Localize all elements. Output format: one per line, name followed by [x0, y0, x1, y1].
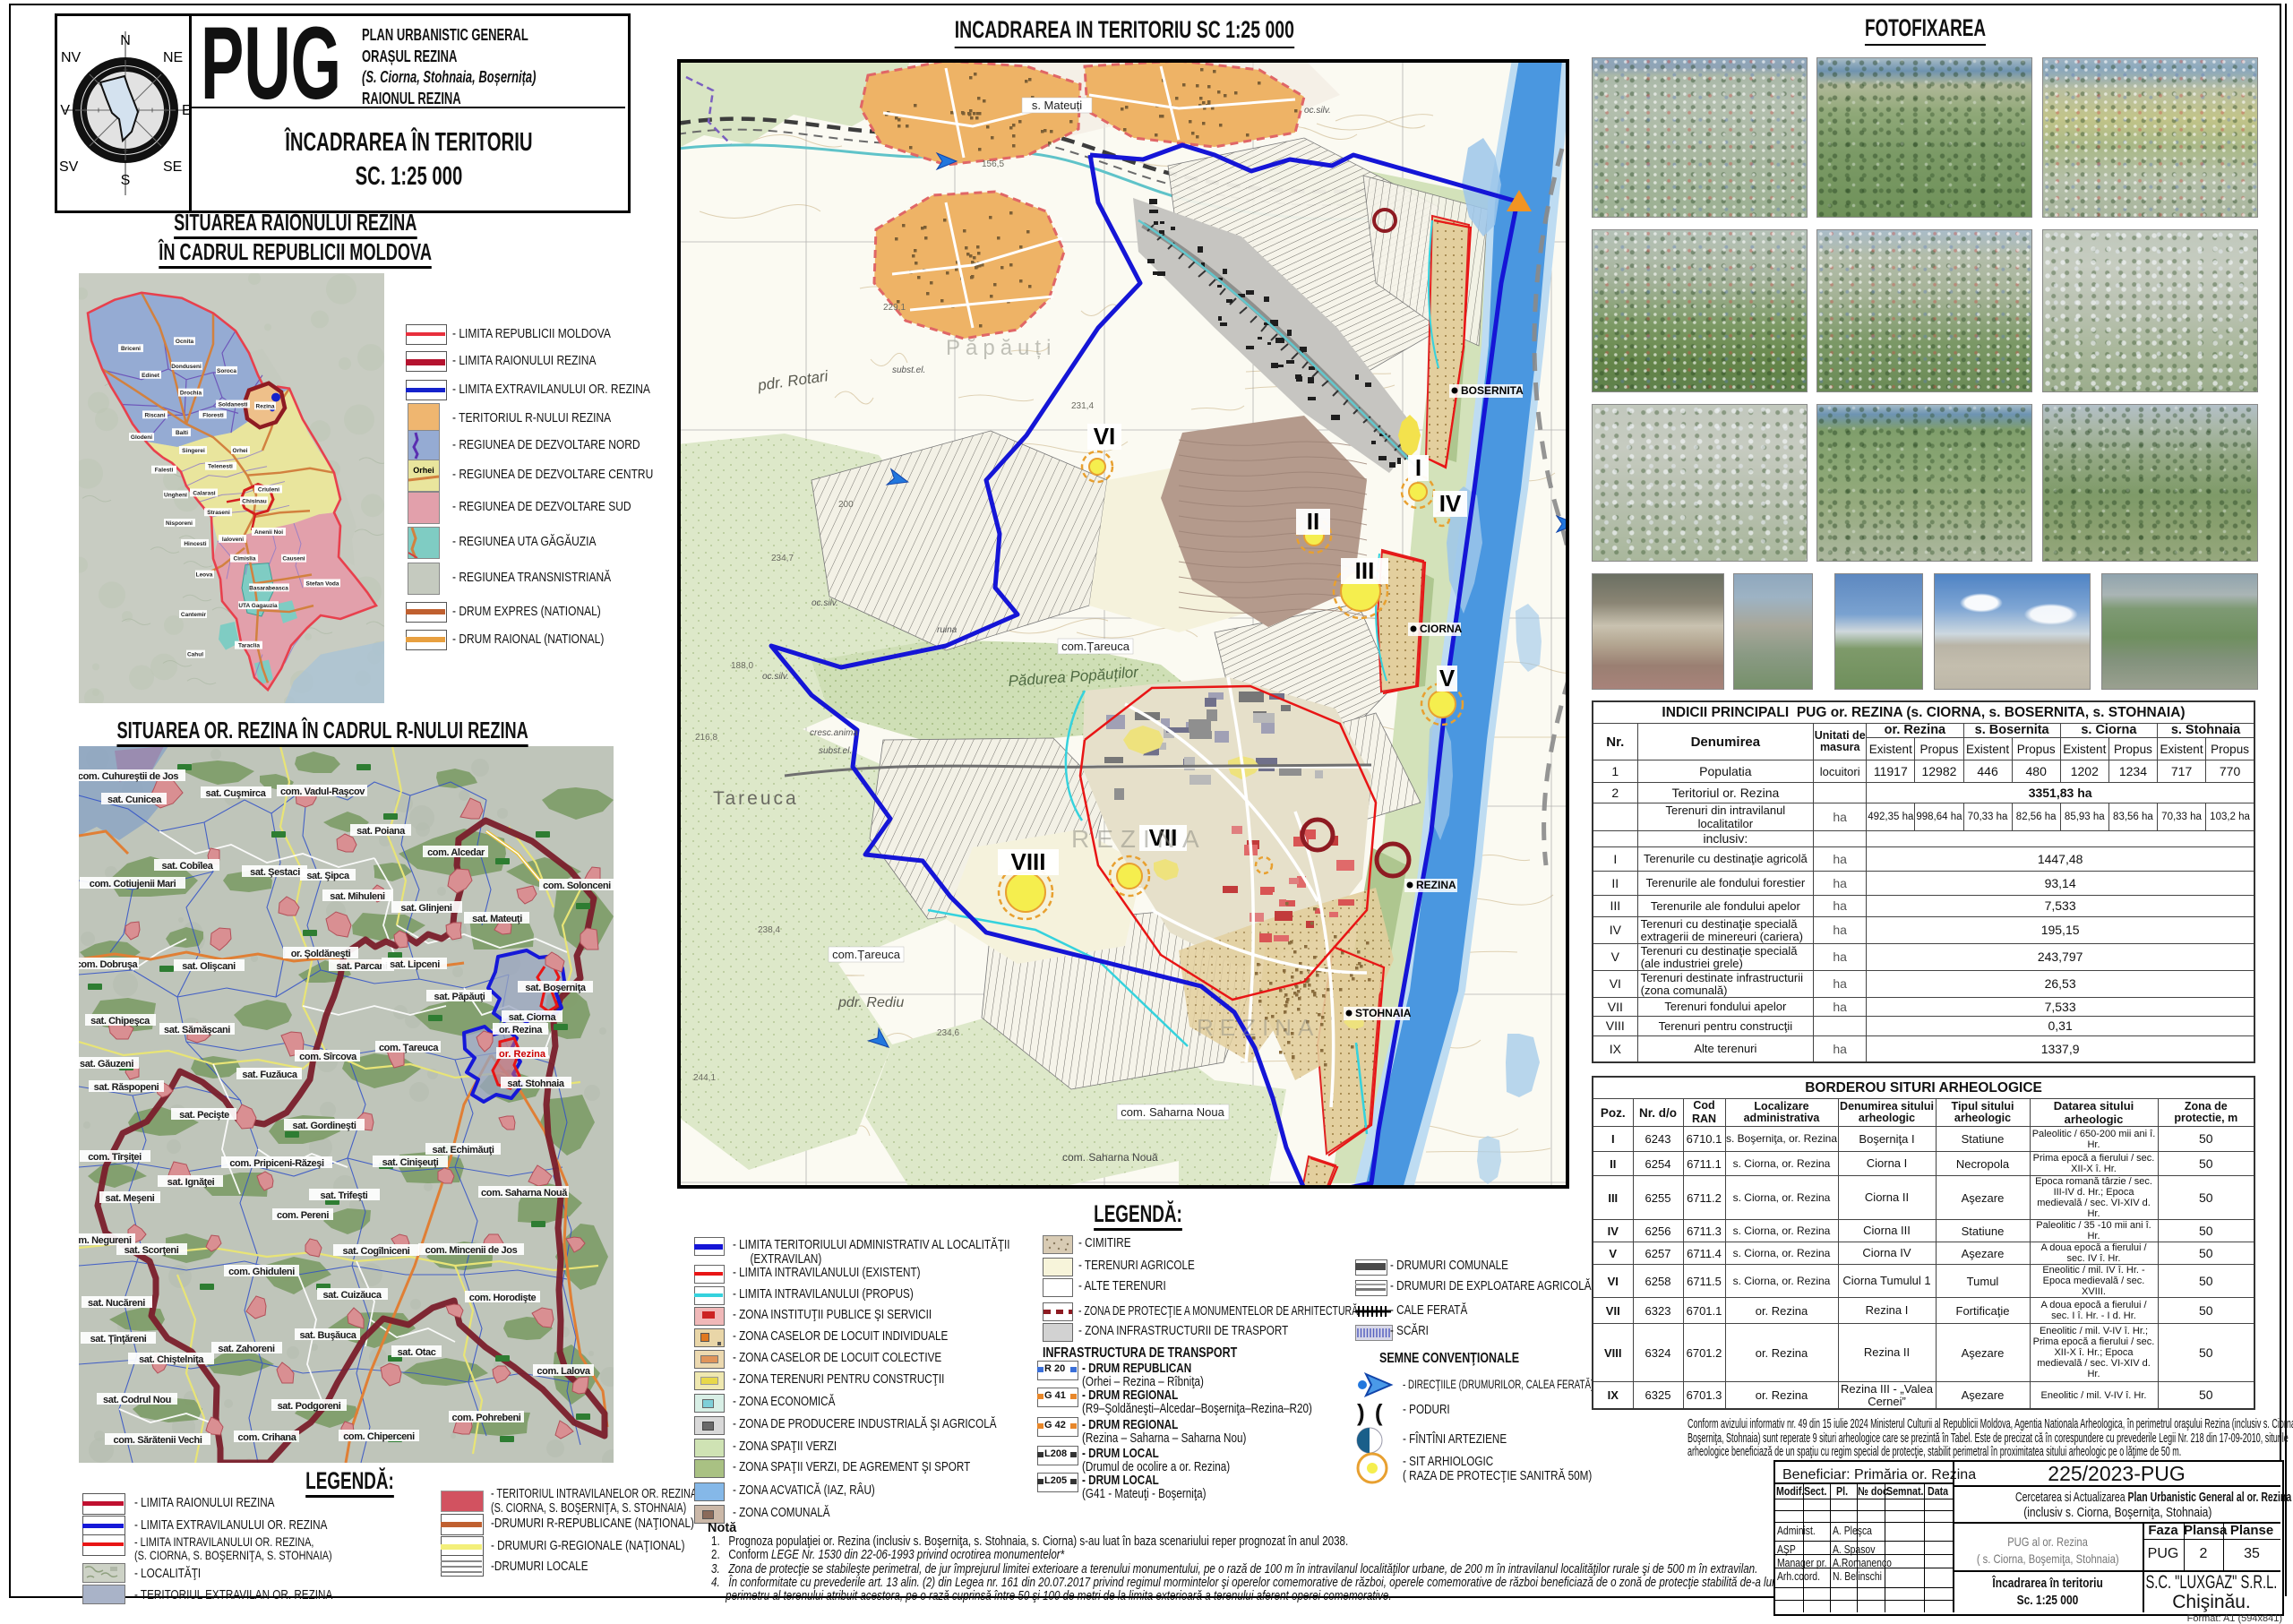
svg-text:Anenii Noi: Anenii Noi — [254, 529, 283, 536]
svg-text:com. Horodişte: com. Horodişte — [469, 1293, 537, 1303]
svg-text:Leova: Leova — [196, 572, 213, 579]
svg-text:sat. Şestaci: sat. Şestaci — [250, 867, 300, 878]
svg-text:sat. Cogîlniceni: sat. Cogîlniceni — [343, 1246, 410, 1257]
svg-text:234,6: 234,6 — [937, 1028, 959, 1038]
svg-text:sat. Mateuţi: sat. Mateuţi — [472, 914, 522, 924]
svg-text:pdr. Rediu: pdr. Rediu — [837, 995, 904, 1010]
svg-text:com. Ghiduleni: com. Ghiduleni — [228, 1267, 295, 1277]
svg-text:oc.silv.: oc.silv. — [812, 598, 838, 608]
svg-text:Drochia: Drochia — [180, 391, 202, 397]
svg-text:sat. Cuşmirca: sat. Cuşmirca — [206, 788, 267, 799]
svg-text:cresc.anima: cresc.anima — [810, 728, 858, 738]
svg-text:sat. Sămăşcani: sat. Sămăşcani — [164, 1025, 230, 1035]
svg-text:oc.silv.: oc.silv. — [762, 672, 789, 682]
svg-text:sat. Şipca: sat. Şipca — [306, 871, 350, 881]
svg-text:Telenesti: Telenesti — [208, 464, 233, 470]
svg-text:sat. Boşerniţa: sat. Boşerniţa — [525, 983, 586, 993]
svg-text:com. Lalova: com. Lalova — [537, 1366, 590, 1377]
svg-text:sat. Codrul Nou: sat. Codrul Nou — [103, 1395, 171, 1405]
svg-text:sat. Otac: sat. Otac — [398, 1347, 436, 1358]
svg-text:sat. Gordineşti: sat. Gordineşti — [292, 1121, 356, 1131]
svg-text:sat. Chiştelniţa: sat. Chiştelniţa — [139, 1354, 204, 1365]
svg-text:com. Pereni: com. Pereni — [277, 1210, 329, 1221]
svg-text:IV: IV — [1439, 490, 1462, 517]
svg-text:Ocnita: Ocnita — [176, 339, 194, 345]
svg-text:sat. Nucăreni: sat. Nucăreni — [88, 1298, 145, 1309]
svg-text:com. Pripiceni-Răzeşi: com. Pripiceni-Răzeşi — [229, 1158, 324, 1169]
svg-text:com. Chiperceni: com. Chiperceni — [343, 1431, 415, 1442]
svg-text:200: 200 — [838, 500, 854, 510]
svg-text:com. Sîrcova: com. Sîrcova — [299, 1052, 357, 1062]
svg-text:Glodeni: Glodeni — [131, 434, 152, 441]
svg-text:sat. Echimăuţi: sat. Echimăuţi — [433, 1145, 494, 1156]
svg-text:com. Saharna Noua: com. Saharna Noua — [1121, 1105, 1224, 1119]
svg-text:sat. Zahoreni: sat. Zahoreni — [218, 1344, 275, 1354]
svg-text:Floresti: Floresti — [202, 412, 224, 418]
svg-text:or. Rezina: or. Rezina — [499, 1049, 546, 1060]
svg-text:com.Țareuca: com.Țareuca — [832, 948, 901, 961]
svg-text:Basarabeasca: Basarabeasca — [249, 585, 288, 591]
svg-text:sat. Ţînţăreni: sat. Ţînţăreni — [90, 1334, 147, 1345]
svg-text:Ialoveni: Ialoveni — [222, 537, 244, 543]
svg-text:Chisinau: Chisinau — [242, 498, 266, 504]
svg-text:com. Dobruşa: com. Dobruşa — [79, 959, 139, 970]
svg-text:229,1: 229,1 — [883, 303, 906, 313]
svg-text:com. Tîrşiţei: com. Tîrşiţei — [88, 1152, 142, 1163]
svg-text:238,4: 238,4 — [758, 925, 780, 935]
svg-text:Stefan Voda: Stefan Voda — [305, 580, 339, 587]
svg-text:Causeni: Causeni — [282, 556, 305, 563]
svg-text:com. Cotiujenii Mari: com. Cotiujenii Mari — [90, 879, 176, 889]
svg-text:188,0: 188,0 — [731, 661, 753, 671]
svg-text:sat. Răspopeni: sat. Răspopeni — [94, 1082, 159, 1093]
svg-text:com. Sărătenii Vechi: com. Sărătenii Vechi — [114, 1435, 202, 1446]
svg-text:Tareuca: Tareuca — [713, 788, 799, 809]
svg-text:or. Şoldăneşti: or. Şoldăneşti — [291, 949, 351, 959]
svg-text:S: S — [121, 173, 131, 188]
svg-text:sat. Păpăuţi: sat. Păpăuţi — [434, 992, 485, 1002]
svg-text:SE: SE — [163, 159, 182, 175]
svg-text:Calarasi: Calarasi — [193, 490, 215, 496]
svg-text:sat. Buşăuca: sat. Buşăuca — [299, 1330, 356, 1341]
svg-text:216,8: 216,8 — [695, 733, 717, 743]
svg-text:com. Saharna Nouă: com. Saharna Nouă — [481, 1188, 568, 1199]
svg-text:Păpăuți: Păpăuți — [946, 336, 1056, 360]
svg-text:UTA Gagauzia: UTA Gagauzia — [238, 603, 278, 609]
svg-text:VI: VI — [1094, 423, 1116, 450]
svg-text:sat. Meşeni: sat. Meşeni — [106, 1193, 155, 1204]
svg-text:sat. Cinişeuţi: sat. Cinişeuţi — [382, 1157, 439, 1168]
svg-text:or. Rezina: or. Rezina — [499, 1025, 543, 1035]
svg-text:Cimislia: Cimislia — [234, 556, 256, 563]
svg-text:Nisporeni: Nisporeni — [166, 520, 193, 527]
svg-text:Criuleni: Criuleni — [258, 486, 279, 493]
svg-text:sat. Trifeşti: sat. Trifeşti — [321, 1190, 368, 1201]
svg-text:sat. Lipceni: sat. Lipceni — [390, 959, 440, 970]
svg-text:com. Mincenii de Jos: com. Mincenii de Jos — [425, 1245, 518, 1256]
svg-text:NE: NE — [163, 50, 183, 65]
svg-text:sat. Olişcani: sat. Olişcani — [182, 961, 236, 972]
svg-text:Taraclia: Taraclia — [238, 643, 260, 649]
svg-text:sat. Parcani: sat. Parcani — [337, 961, 388, 972]
svg-text:Balti: Balti — [176, 430, 188, 436]
svg-text:oc.silv.: oc.silv. — [1304, 106, 1331, 116]
svg-text:sat. Cobîlea: sat. Cobîlea — [162, 861, 214, 872]
svg-text:sat. Mihuleni: sat. Mihuleni — [330, 891, 385, 902]
svg-text:231,4: 231,4 — [1071, 401, 1094, 411]
svg-text:com. Negureni: com. Negureni — [79, 1235, 132, 1246]
svg-text:SV: SV — [59, 159, 79, 175]
svg-text:subst.el.: subst.el. — [892, 365, 925, 375]
svg-text:I: I — [1415, 454, 1421, 481]
svg-text:com. Cuhureştii de Jos: com. Cuhureştii de Jos — [79, 771, 178, 782]
svg-text:REZINA: REZINA — [1071, 825, 1207, 853]
svg-text:Orhei: Orhei — [233, 448, 248, 454]
svg-text:Soroca: Soroca — [217, 368, 236, 374]
svg-text:subst.el.: subst.el. — [819, 746, 852, 756]
svg-text:REZINA: REZINA — [1416, 879, 1456, 891]
svg-text:sat. Fuzăuca: sat. Fuzăuca — [242, 1070, 298, 1080]
svg-text:Rezina: Rezina — [256, 403, 275, 409]
svg-text:sat. Glinjeni: sat. Glinjeni — [400, 903, 451, 914]
svg-text:Singerei: Singerei — [182, 448, 205, 454]
svg-text:REZINA: REZINA — [1197, 1014, 1319, 1041]
svg-text:234,7: 234,7 — [771, 554, 794, 563]
svg-text:sat. Găuzeni: sat. Găuzeni — [80, 1059, 133, 1070]
svg-text:com. Pohrebeni: com. Pohrebeni — [452, 1413, 521, 1423]
svg-text:II: II — [1307, 508, 1319, 535]
svg-text:sat. Scorţeni: sat. Scorţeni — [125, 1245, 179, 1256]
svg-text:III: III — [1355, 557, 1375, 584]
svg-text:STOHNAIA: STOHNAIA — [1355, 1007, 1412, 1019]
svg-text:VIII: VIII — [1010, 848, 1045, 875]
svg-text:CIORNA: CIORNA — [1420, 623, 1463, 635]
svg-text:Orhei: Orhei — [413, 466, 434, 475]
svg-text:com. Saharna Nouă: com. Saharna Nouă — [1062, 1151, 1158, 1164]
svg-text:sat. Pecişte: sat. Pecişte — [179, 1110, 229, 1121]
svg-text:N: N — [120, 33, 131, 48]
svg-text:Soldanesti: Soldanesti — [219, 401, 248, 408]
svg-text:NV: NV — [61, 50, 82, 65]
svg-text:sat. Chipeşca: sat. Chipeşca — [90, 1016, 150, 1027]
svg-text:156,5: 156,5 — [982, 159, 1004, 169]
svg-text:Straseni: Straseni — [207, 510, 230, 516]
svg-text:sat. Podgoreni: sat. Podgoreni — [278, 1401, 341, 1412]
svg-text:com.Țareuca: com.Țareuca — [1061, 640, 1130, 653]
svg-text:com. Crihana: com. Crihana — [238, 1432, 297, 1443]
svg-text:ruina: ruina — [937, 625, 958, 635]
svg-text:sat. Poiana: sat. Poiana — [356, 826, 406, 837]
svg-text:s. Mateuți: s. Mateuți — [1032, 99, 1082, 112]
svg-text:Cantemir: Cantemir — [181, 612, 207, 618]
svg-text:Edinet: Edinet — [142, 373, 160, 379]
svg-text:BOSERNITA: BOSERNITA — [1461, 384, 1524, 397]
svg-text:sat. Ciorna: sat. Ciorna — [509, 1012, 557, 1023]
svg-text:Donduseni: Donduseni — [171, 364, 202, 370]
svg-text:Ungheni: Ungheni — [164, 492, 187, 498]
svg-text:com. Ţareuca: com. Ţareuca — [379, 1043, 439, 1053]
svg-text:Hincesti: Hincesti — [184, 541, 206, 547]
svg-text:com. Solonceni: com. Solonceni — [543, 881, 611, 891]
svg-text:com. Vadul-Raşcov: com. Vadul-Raşcov — [280, 786, 365, 797]
svg-text:Cahul: Cahul — [187, 652, 203, 658]
svg-text:E: E — [182, 103, 189, 118]
svg-text:com. Alcedar: com. Alcedar — [427, 847, 485, 858]
svg-text:V: V — [1439, 665, 1456, 692]
svg-text:Briceni: Briceni — [121, 346, 141, 352]
svg-text:sat. Ignăţei: sat. Ignăţei — [167, 1177, 215, 1188]
svg-text:V: V — [60, 103, 70, 118]
svg-text:sat. Stohnaia: sat. Stohnaia — [507, 1078, 565, 1089]
svg-text:sat. Cunicea: sat. Cunicea — [107, 795, 162, 805]
svg-text:Falesti: Falesti — [155, 468, 174, 474]
svg-text:244,1: 244,1 — [693, 1073, 716, 1083]
svg-text:sat. Cuizăuca: sat. Cuizăuca — [322, 1290, 382, 1301]
svg-text:Riscani: Riscani — [144, 412, 165, 418]
